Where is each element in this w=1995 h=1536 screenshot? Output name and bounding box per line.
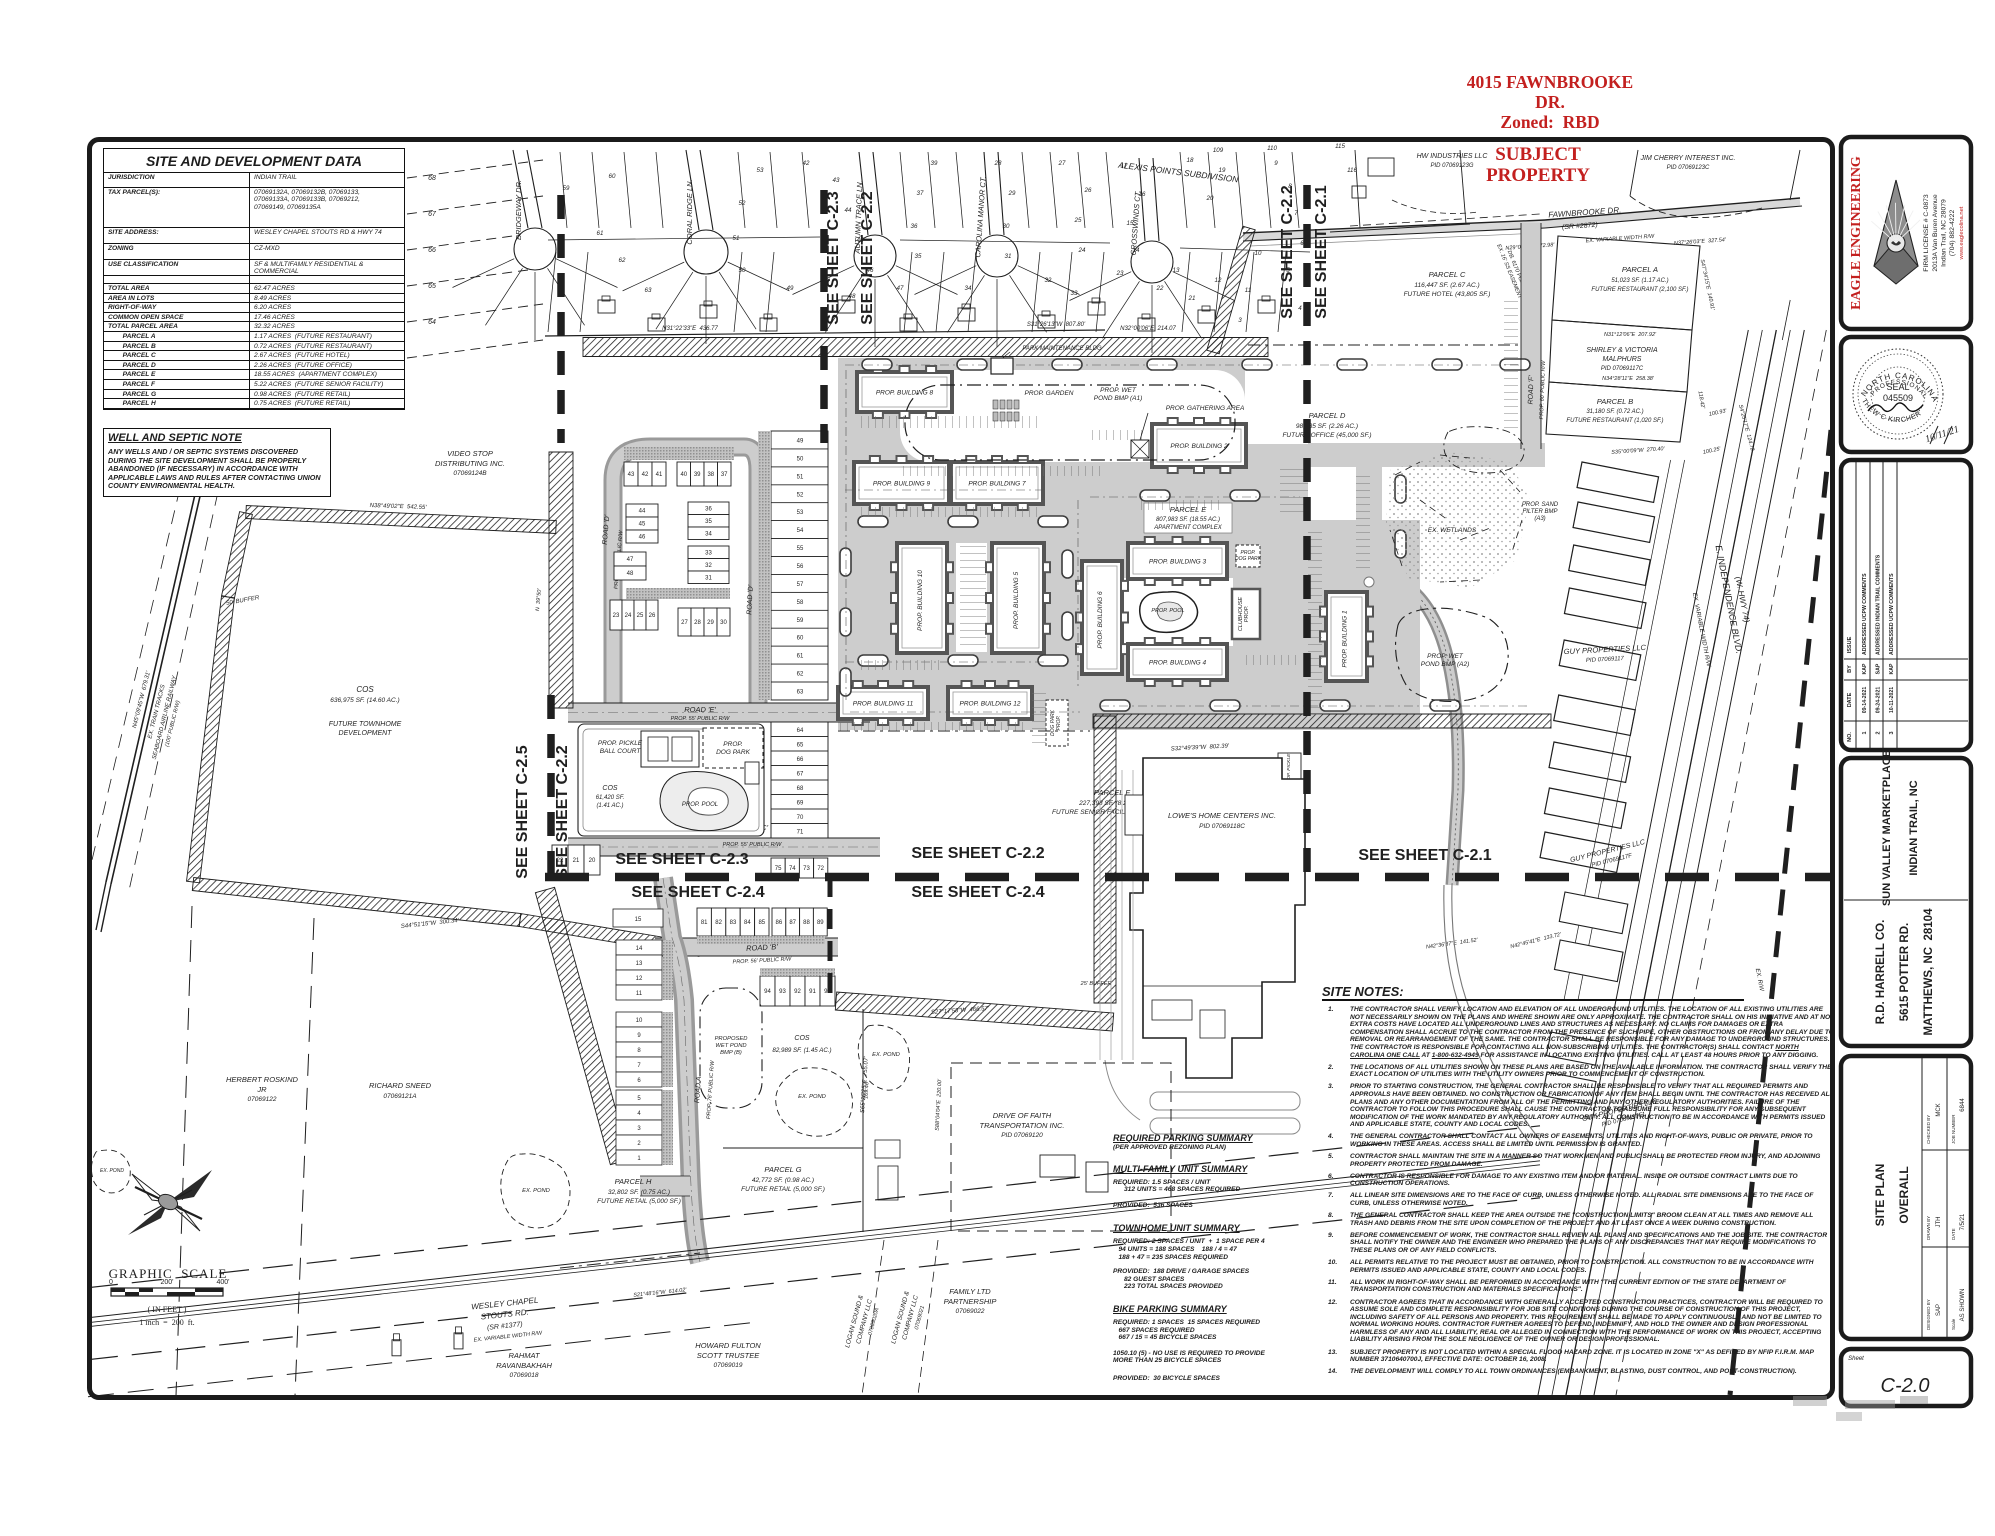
svg-text:KAP: KAP <box>1889 663 1895 674</box>
svg-text:www.eaglecolina.net: www.eaglecolina.net <box>1959 206 1965 260</box>
svg-text:R.D. HARRELL CO.: R.D. HARRELL CO. <box>1875 920 1887 1025</box>
svg-text:KAP: KAP <box>1862 663 1868 674</box>
svg-text:MCK: MCK <box>1936 1103 1942 1116</box>
svg-text:2013A Van Buren Avenue: 2013A Van Buren Avenue <box>1932 194 1939 271</box>
svg-text:SUN VALLEY MARKETPLACE: SUN VALLEY MARKETPLACE <box>1881 750 1893 906</box>
svg-text:EAGLE ENGINEERING: EAGLE ENGINEERING <box>1849 156 1864 310</box>
svg-text:SAP: SAP <box>1876 663 1882 674</box>
svg-text:C-2.0: C-2.0 <box>1881 1375 1930 1397</box>
svg-text:NO.: NO. <box>1847 732 1853 742</box>
svg-text:09-14-2021: 09-14-2021 <box>1862 687 1868 714</box>
svg-text:FIRM LICENSE # C-0873: FIRM LICENSE # C-0873 <box>1923 194 1930 272</box>
svg-text:Indian Trail, NC 28079: Indian Trail, NC 28079 <box>1941 199 1948 267</box>
svg-text:DATE: DATE <box>1951 1228 1956 1240</box>
svg-text:6844: 6844 <box>1960 1098 1966 1112</box>
svg-text:09-24-2021: 09-24-2021 <box>1876 687 1882 714</box>
svg-text:ISSUE: ISSUE <box>1847 636 1853 653</box>
svg-text:DATE: DATE <box>1847 692 1853 707</box>
svg-text:OVERALL: OVERALL <box>1897 1166 1911 1223</box>
svg-text:(704) 882-4222: (704) 882-4222 <box>1949 210 1956 257</box>
svg-text:3: 3 <box>1889 731 1895 734</box>
svg-text:ADDRESSED UCPW COMMENTS: ADDRESSED UCPW COMMENTS <box>1862 573 1868 655</box>
svg-text:Scale: Scale <box>1951 1318 1956 1330</box>
svg-text:Sheet: Sheet <box>1848 1356 1864 1362</box>
svg-text:JOB NUMBER: JOB NUMBER <box>1951 1114 1956 1144</box>
svg-text:045509: 045509 <box>1883 393 1913 403</box>
svg-text:ADDRESSED INDIAN TRAIL COMMENT: ADDRESSED INDIAN TRAIL COMMENTS <box>1876 554 1882 655</box>
svg-text:5615 POTTER RD.: 5615 POTTER RD. <box>1899 923 1911 1021</box>
svg-text:AS SHOWN: AS SHOWN <box>1960 1289 1966 1322</box>
svg-text:SEAL: SEAL <box>1886 382 1909 392</box>
svg-text:MATTHEWS, NC 28104: MATTHEWS, NC 28104 <box>1923 908 1935 1036</box>
svg-text:10-11-2021: 10-11-2021 <box>1889 687 1895 713</box>
svg-text:INDIAN TRAIL, NC: INDIAN TRAIL, NC <box>1908 780 1920 875</box>
svg-text:JTH: JTH <box>1936 1217 1942 1228</box>
svg-text:2: 2 <box>1876 731 1882 734</box>
svg-text:SITE PLAN: SITE PLAN <box>1873 1164 1887 1227</box>
svg-text:7/5/21: 7/5/21 <box>1960 1213 1966 1230</box>
svg-text:CHECKED BY: CHECKED BY <box>1926 1115 1931 1144</box>
svg-text:DRAWN BY: DRAWN BY <box>1926 1216 1931 1240</box>
svg-text:ADDRESSED UCPW COMMENTS: ADDRESSED UCPW COMMENTS <box>1889 573 1895 655</box>
svg-text:BY: BY <box>1847 665 1853 673</box>
svg-text:SAP: SAP <box>1936 1304 1942 1316</box>
svg-text:DESIGNED BY: DESIGNED BY <box>1926 1299 1931 1330</box>
svg-text:1: 1 <box>1862 731 1868 734</box>
